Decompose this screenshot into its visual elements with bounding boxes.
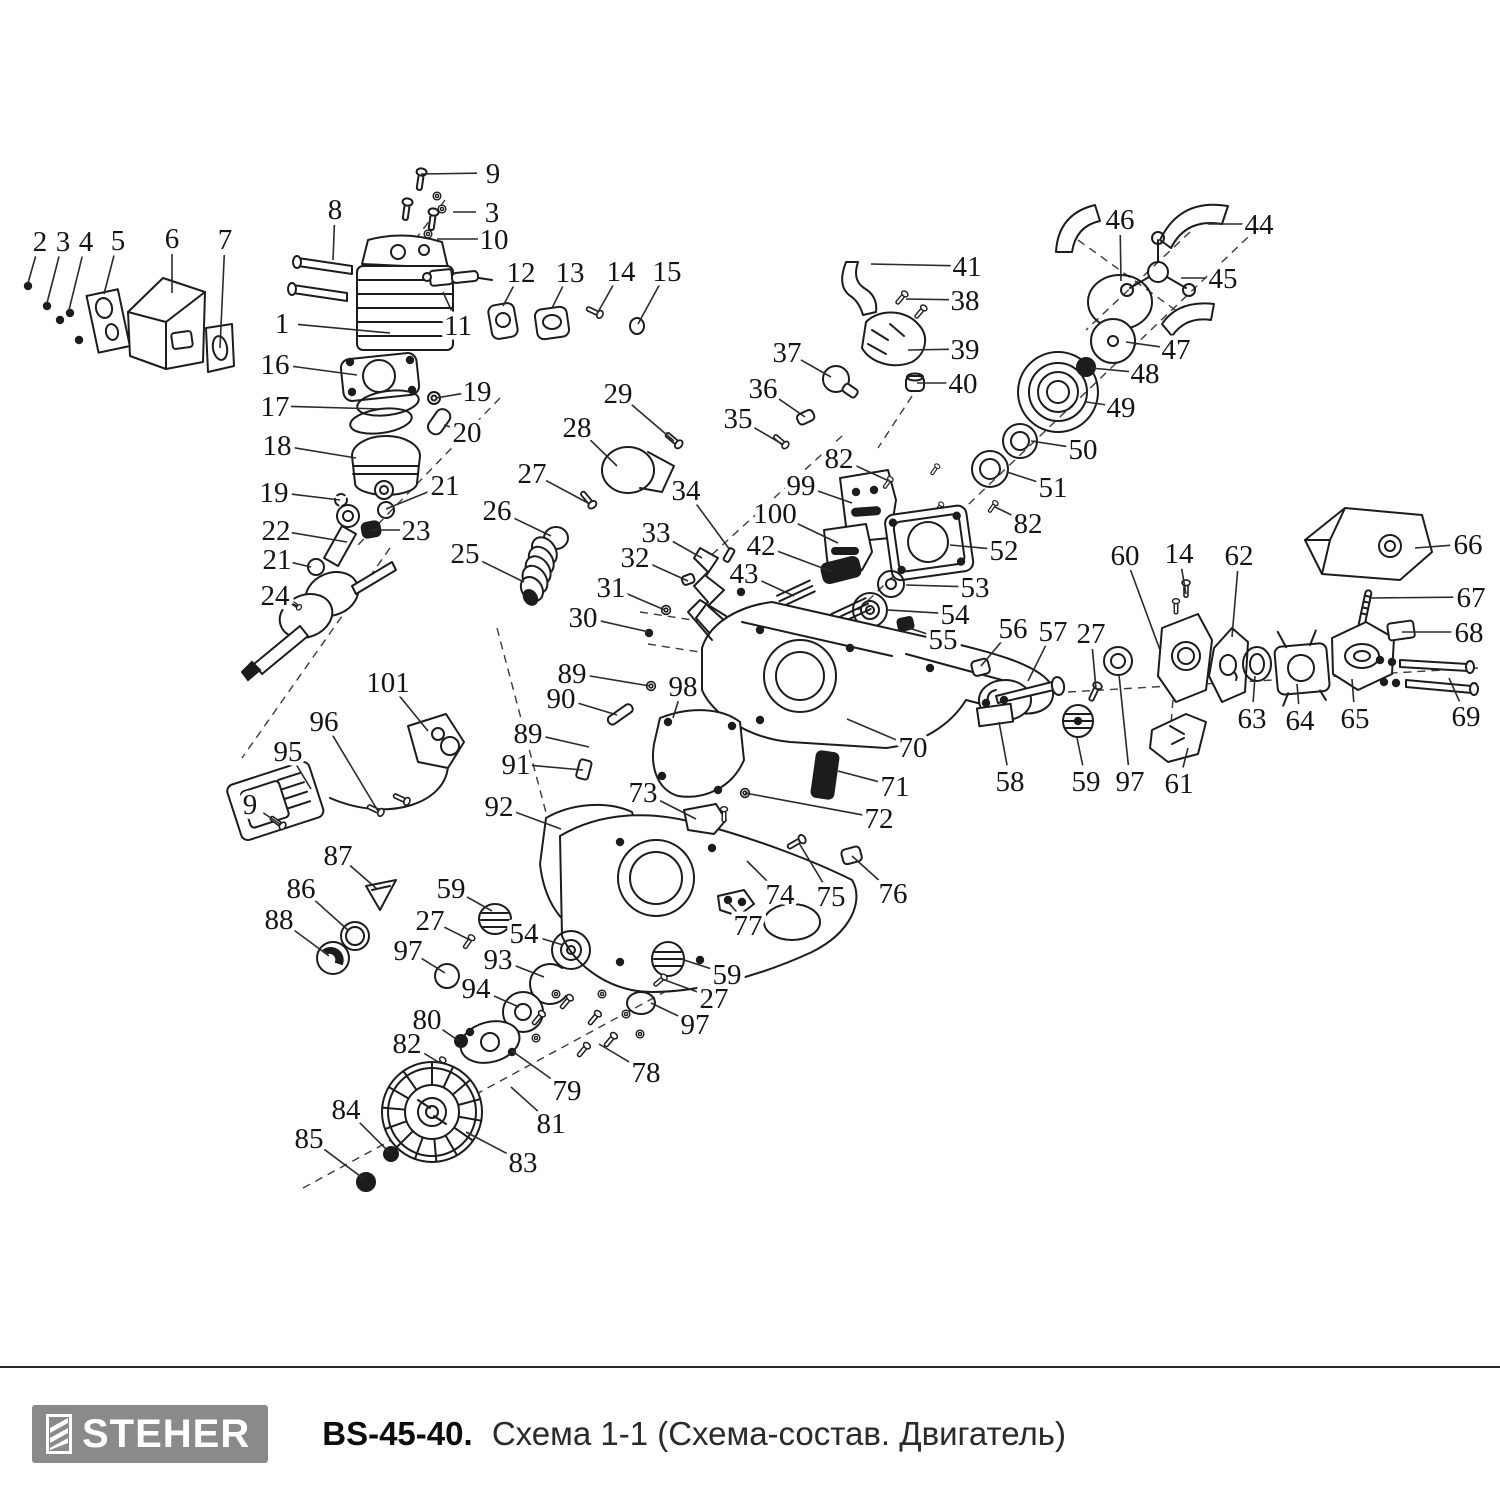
leader-line-13 — [552, 286, 563, 308]
callout-2: 2 — [33, 226, 48, 258]
callout-19: 19 — [463, 376, 492, 408]
callout-9: 9 — [486, 158, 501, 190]
callout-20: 20 — [453, 417, 482, 449]
callout-38: 38 — [951, 285, 980, 317]
leader-line-33 — [670, 540, 702, 558]
callout-66: 66 — [1454, 529, 1483, 561]
callout-98: 98 — [669, 671, 698, 703]
callout-37: 37 — [773, 337, 802, 369]
callout-84: 84 — [332, 1094, 362, 1126]
steher-logo: STEHER — [32, 1405, 268, 1463]
callout-29: 29 — [604, 378, 633, 410]
leader-line-29 — [630, 403, 674, 441]
leader-line-83 — [466, 1132, 509, 1155]
callout-31: 31 — [597, 572, 626, 604]
leader-line-54 — [539, 938, 563, 945]
callout-27: 27 — [1077, 618, 1106, 650]
leader-line-76 — [852, 856, 881, 882]
leader-line-17 — [291, 406, 380, 409]
callout-19: 19 — [260, 477, 289, 509]
leader-line-89 — [588, 676, 650, 686]
callout-59: 59 — [437, 873, 466, 905]
callout-18: 18 — [263, 430, 292, 462]
callout-30: 30 — [569, 602, 598, 634]
callout-93: 93 — [484, 944, 513, 976]
callout-95: 95 — [274, 736, 303, 768]
leader-line-15 — [638, 285, 659, 324]
callout-27: 27 — [416, 905, 445, 937]
callout-74: 74 — [766, 879, 796, 911]
parts-diagram-page: 2345678931012131415111161719201819212223… — [0, 0, 1500, 1500]
callout-48: 48 — [1131, 358, 1160, 390]
callout-82: 82 — [393, 1028, 422, 1060]
callout-10: 10 — [480, 224, 509, 256]
callout-90: 90 — [547, 683, 576, 715]
callout-22: 22 — [262, 515, 291, 547]
leader-line-32 — [650, 564, 688, 581]
gasket-98 — [653, 710, 744, 797]
leader-line-87 — [350, 866, 377, 889]
callout-45: 45 — [1209, 263, 1238, 295]
callout-78: 78 — [632, 1057, 661, 1089]
callout-76: 76 — [879, 878, 908, 910]
callout-21: 21 — [431, 470, 460, 502]
callout-87: 87 — [324, 840, 353, 872]
leader-line-37 — [801, 360, 831, 377]
leader-line-8 — [333, 225, 334, 260]
leader-line-18 — [293, 448, 356, 458]
callout-43: 43 — [730, 558, 759, 590]
leader-line-25 — [479, 560, 524, 582]
callout-101: 101 — [366, 667, 410, 699]
leader-line-89 — [544, 737, 589, 747]
callout-12: 12 — [507, 257, 536, 289]
callout-67: 67 — [1457, 582, 1486, 614]
leader-line-58 — [999, 722, 1007, 765]
carburetor-airbox-group — [1158, 508, 1478, 706]
callout-69: 69 — [1452, 701, 1481, 733]
callout-83: 83 — [509, 1147, 538, 1179]
callout-16: 16 — [261, 349, 290, 381]
callout-34: 34 — [672, 475, 702, 507]
callout-25: 25 — [451, 538, 480, 570]
callout-39: 39 — [951, 334, 980, 366]
diagram-caption: BS-45-40. Схема 1-1 (Схема-состав. Двига… — [322, 1415, 1066, 1453]
leader-line-41 — [871, 264, 951, 266]
leader-line-5 — [104, 255, 114, 294]
callout-97: 97 — [1116, 766, 1145, 798]
callout-72: 72 — [865, 803, 894, 835]
flywheel — [357, 1062, 482, 1191]
leader-line-27 — [444, 927, 470, 940]
leader-line-90 — [576, 703, 617, 715]
callout-81: 81 — [537, 1108, 566, 1140]
callout-8: 8 — [328, 194, 343, 226]
callout-73: 73 — [629, 777, 658, 809]
callout-75: 75 — [817, 881, 846, 913]
leader-line-80 — [440, 1028, 459, 1041]
callout-91: 91 — [502, 749, 531, 781]
callout-56: 56 — [999, 613, 1028, 645]
callout-68: 68 — [1455, 617, 1484, 649]
callout-86: 86 — [287, 873, 316, 905]
callout-59: 59 — [1072, 766, 1101, 798]
leader-line-96 — [332, 735, 378, 811]
leader-line-30 — [599, 621, 649, 632]
callout-23: 23 — [402, 515, 431, 547]
leader-line-60 — [1131, 570, 1160, 650]
leader-line-43 — [759, 580, 794, 596]
callout-21: 21 — [263, 544, 292, 576]
leader-line-19 — [290, 494, 340, 500]
callout-24: 24 — [261, 580, 291, 612]
leader-line-82 — [995, 507, 1014, 516]
leader-line-72 — [745, 793, 863, 815]
footer: STEHER BS-45-40. Схема 1-1 (Схема-состав… — [32, 1404, 1468, 1464]
leader-line-38 — [906, 299, 949, 300]
callout-36: 36 — [749, 373, 778, 405]
callout-3: 3 — [56, 226, 71, 258]
callout-82: 82 — [825, 443, 854, 475]
leader-line-71 — [838, 771, 880, 782]
callout-27: 27 — [518, 458, 547, 490]
callout-14: 14 — [607, 256, 637, 288]
leader-line-34 — [695, 503, 730, 550]
leader-line-62 — [1232, 571, 1238, 637]
callout-89: 89 — [514, 718, 543, 750]
leader-line-14 — [597, 285, 613, 314]
ignition-coil-group — [225, 714, 464, 842]
leader-line-59 — [1077, 738, 1083, 765]
callout-7: 7 — [218, 224, 233, 256]
callout-63: 63 — [1238, 703, 1267, 735]
callout-70: 70 — [899, 732, 928, 764]
leader-line-2 — [28, 256, 36, 283]
callout-46: 46 — [1106, 204, 1135, 236]
callout-11: 11 — [444, 310, 472, 342]
callout-14: 14 — [1165, 538, 1195, 570]
leader-line-31 — [626, 593, 665, 610]
leader-line-51 — [1007, 472, 1038, 482]
steher-brand-icon — [46, 1414, 72, 1454]
callout-55: 55 — [929, 624, 958, 656]
leader-line-48 — [1091, 368, 1129, 372]
brand-name: STEHER — [82, 1412, 250, 1457]
leader-line-59 — [465, 896, 492, 911]
callout-9: 9 — [243, 789, 258, 821]
muffler-assembly — [25, 278, 234, 372]
callout-57: 57 — [1039, 616, 1068, 648]
callout-44: 44 — [1245, 209, 1275, 241]
callout-49: 49 — [1107, 392, 1136, 424]
callout-58: 58 — [996, 766, 1025, 798]
callout-52: 52 — [990, 535, 1019, 567]
callout-40: 40 — [949, 368, 978, 400]
callout-5: 5 — [111, 225, 126, 257]
leader-line-53 — [906, 585, 959, 587]
callout-97: 97 — [394, 935, 423, 967]
leader-line-78 — [599, 1044, 632, 1064]
callout-85: 85 — [295, 1123, 324, 1155]
leader-line-42 — [776, 551, 833, 572]
callout-35: 35 — [724, 403, 753, 435]
callout-54: 54 — [510, 918, 540, 950]
callout-13: 13 — [556, 257, 585, 289]
leader-line-26 — [511, 517, 551, 536]
callout-6: 6 — [165, 223, 180, 255]
callout-28: 28 — [563, 412, 592, 444]
callout-97: 97 — [681, 1009, 710, 1041]
callout-92: 92 — [485, 791, 514, 823]
leader-line-9 — [421, 173, 477, 174]
callout-17: 17 — [261, 391, 290, 423]
leader-line-46 — [1120, 235, 1121, 281]
leader-line-54 — [888, 610, 939, 613]
model-number: BS-45-40. — [322, 1415, 472, 1452]
leader-line-36 — [776, 397, 805, 417]
callout-60: 60 — [1111, 540, 1140, 572]
callout-62: 62 — [1225, 540, 1254, 572]
leader-line-81 — [511, 1087, 539, 1112]
callout-41: 41 — [953, 251, 982, 283]
callout-1: 1 — [275, 308, 290, 340]
callout-65: 65 — [1341, 703, 1370, 735]
diagram-subtitle: Схема 1-1 (Схема-состав. Двигатель) — [492, 1415, 1066, 1452]
leader-line-91 — [532, 765, 583, 770]
callout-94: 94 — [462, 973, 492, 1005]
exploded-diagram: 2345678931012131415111161719201819212223… — [0, 0, 1500, 1500]
leader-line-79 — [512, 1051, 554, 1081]
callout-50: 50 — [1069, 434, 1098, 466]
callout-71: 71 — [881, 771, 910, 803]
callout-100: 100 — [753, 498, 797, 530]
leader-line-3 — [47, 256, 59, 303]
leader-line-4 — [69, 257, 82, 310]
footer-divider — [0, 1366, 1500, 1368]
callout-26: 26 — [483, 495, 512, 527]
callout-15: 15 — [653, 256, 682, 288]
callout-47: 47 — [1162, 334, 1191, 366]
callout-96: 96 — [310, 706, 339, 738]
callout-61: 61 — [1165, 768, 1194, 800]
callout-88: 88 — [265, 904, 294, 936]
callout-77: 77 — [734, 910, 763, 942]
callout-51: 51 — [1039, 472, 1068, 504]
leader-line-88 — [292, 929, 329, 956]
leader-line-97 — [651, 1003, 681, 1017]
callout-33: 33 — [642, 517, 671, 549]
leader-line-67 — [1371, 597, 1455, 598]
callout-4: 4 — [79, 226, 94, 258]
crankcase-bottom-half — [540, 804, 863, 992]
leader-line-86 — [313, 899, 349, 931]
leader-line-39 — [908, 349, 949, 350]
callout-64: 64 — [1286, 705, 1316, 737]
callout-79: 79 — [553, 1075, 582, 1107]
